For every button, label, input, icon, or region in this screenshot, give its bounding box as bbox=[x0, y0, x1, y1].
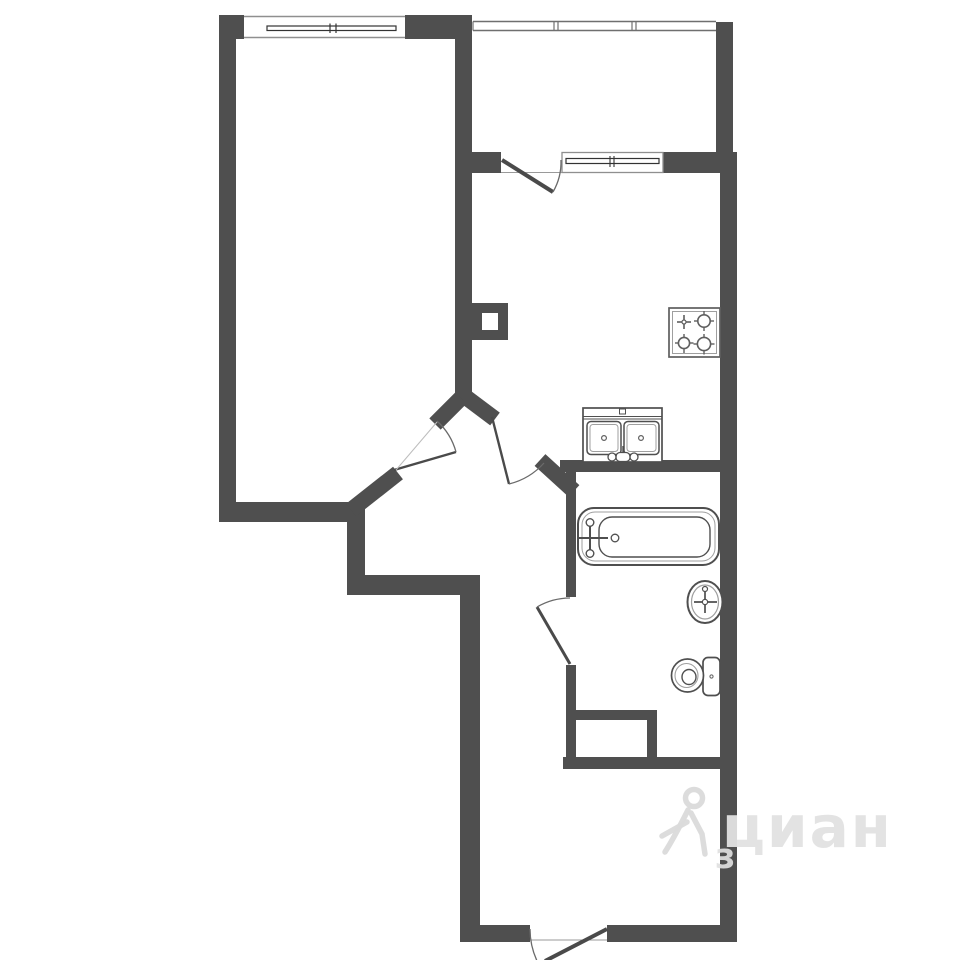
toilet-tank bbox=[703, 658, 720, 696]
floorplan-screenshot: циан з bbox=[0, 0, 960, 960]
stove-outer bbox=[669, 308, 720, 357]
wall-diagonal-livingroom-lower bbox=[351, 473, 398, 510]
stove-burner-tl-dot bbox=[682, 320, 686, 324]
wall-bottom-left-of-door bbox=[460, 925, 530, 942]
vent-duct-inner bbox=[482, 313, 498, 330]
bathtub-faucet-knob-top bbox=[586, 519, 594, 527]
wall-balcony-right bbox=[716, 22, 733, 156]
wall-corridor-left bbox=[460, 575, 480, 942]
washbasin-faucet-dot bbox=[702, 599, 707, 604]
wall-livingroom-bottom bbox=[219, 502, 365, 522]
door-balcony-leaf bbox=[502, 160, 553, 192]
kitchen-sink-faucet-knob-left bbox=[608, 453, 616, 461]
wall-balcony-kitchen-right bbox=[663, 152, 720, 173]
wall-diagonal-kitchen-upper bbox=[467, 398, 495, 419]
door-bathroom-leaf bbox=[537, 607, 570, 664]
wall-left-outer bbox=[219, 15, 236, 522]
wall-shaft-top bbox=[566, 710, 657, 720]
wall-bottom-right-of-door bbox=[607, 925, 737, 942]
door-kitchen-leaf bbox=[492, 417, 509, 484]
floorplan-svg bbox=[0, 0, 960, 960]
washbasin-faucet-top bbox=[703, 587, 708, 592]
door-entrance-arc bbox=[530, 929, 538, 960]
kitchen-sink-basin-left bbox=[587, 422, 621, 455]
window-livingroom-glass bbox=[267, 26, 396, 31]
window-kitchen-frame bbox=[562, 153, 663, 173]
wall-bathroom-bottom bbox=[563, 757, 737, 769]
kitchen-sink-faucet-body bbox=[616, 453, 630, 462]
kitchen-sink-faucet-knob-right bbox=[630, 453, 638, 461]
wall-right-outer bbox=[720, 152, 737, 942]
wall-balcony-kitchen-left bbox=[455, 152, 501, 173]
door-bathroom-arc bbox=[537, 598, 570, 607]
wall-room-divider bbox=[455, 15, 472, 405]
wall-diagonal-livingroom-upper bbox=[435, 398, 461, 424]
bathtub-faucet-knob-bottom bbox=[586, 550, 594, 558]
door-entrance-leaf bbox=[545, 929, 607, 960]
kitchen-sink-basin-right bbox=[624, 422, 659, 455]
door-balcony-arc bbox=[553, 160, 561, 192]
